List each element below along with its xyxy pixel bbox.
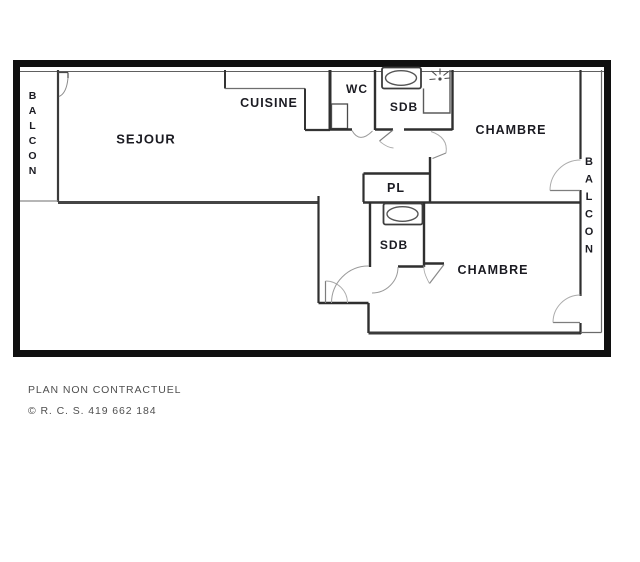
floor-plan-drawing [0, 0, 640, 562]
balcony-door-bottom-arc [553, 295, 581, 323]
outer-frame [17, 64, 608, 354]
room-label-chambre-top: CHAMBRE [476, 124, 547, 137]
floor-plan: BALCON SEJOUR CUISINE WC SDB CHAMBRE PL … [0, 0, 640, 562]
chambre-top-door-arc [431, 132, 446, 159]
bathtub-top-icon [382, 68, 421, 89]
balcony-left-door [58, 73, 68, 97]
room-label-wc: WC [346, 83, 368, 95]
room-label-chambre-bottom: CHAMBRE [458, 264, 529, 277]
rcs-registration-text: © R. C. S. 419 662 184 [28, 405, 157, 417]
plan-disclaimer-text: PLAN NON CONTRACTUEL [28, 384, 181, 396]
wc-door-arc [352, 131, 373, 138]
room-label-pl: PL [387, 182, 405, 195]
room-label-balcon-right: BALCON [583, 156, 594, 261]
room-label-sdb-top: SDB [390, 101, 418, 113]
room-label-cuisine: CUISINE [240, 97, 298, 110]
balcony-left-walls [20, 70, 58, 202]
hall-walls [319, 196, 369, 333]
bathtub-bottom-icon [384, 204, 423, 225]
sdb-bottom-door-arc [372, 267, 398, 293]
sdb-top-door-arc [380, 130, 394, 148]
balcony-door-top-arc [550, 160, 581, 191]
room-label-sdb-bottom: SDB [380, 239, 408, 251]
shower-spray-icon [430, 69, 451, 81]
room-label-sejour: SEJOUR [116, 133, 175, 146]
wc-walls [330, 70, 375, 130]
chambre-top-walls [430, 70, 453, 202]
wc-duct [332, 104, 348, 129]
chambre-bottom-door-arc [424, 265, 444, 284]
room-label-balcon-left: BALCON [27, 90, 38, 180]
